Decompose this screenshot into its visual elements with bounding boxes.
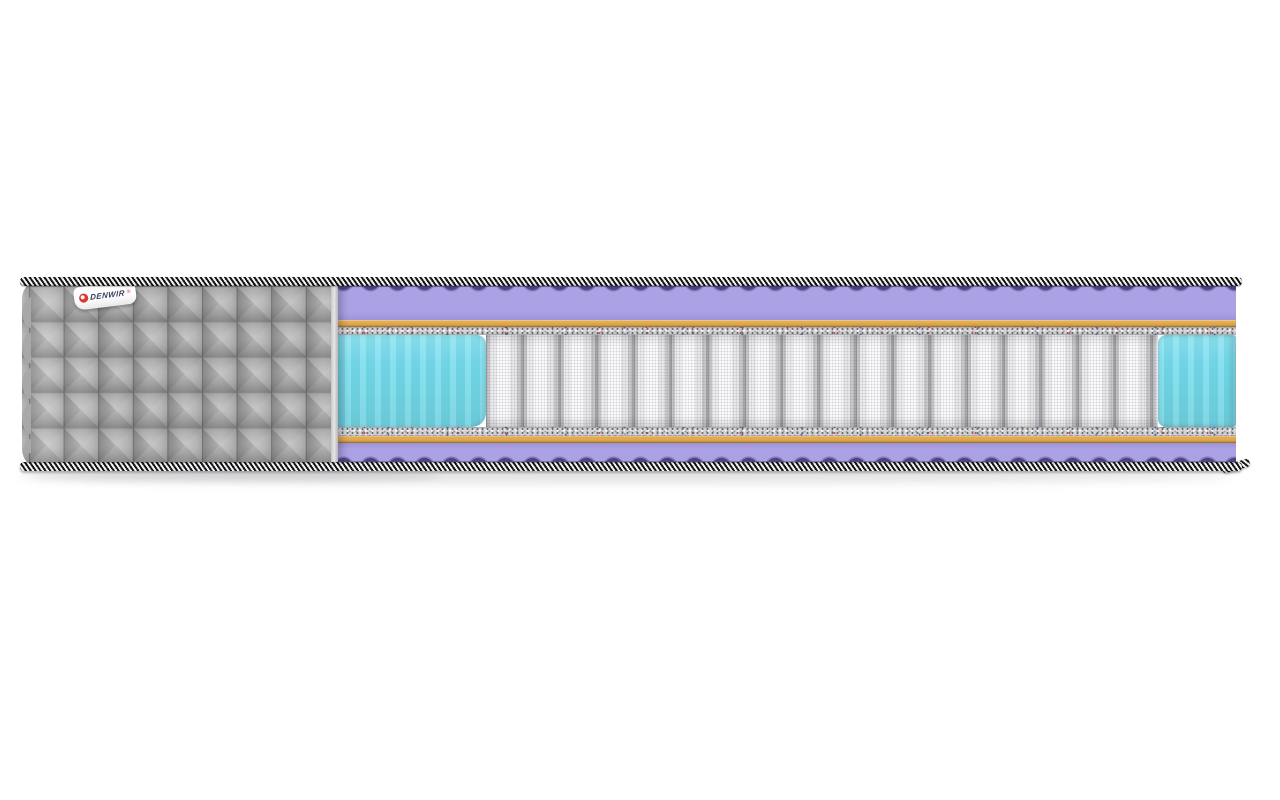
pocket-springs-block — [486, 335, 1158, 427]
brand-logo-icon — [79, 293, 89, 303]
side-foam-right — [1158, 335, 1236, 427]
registered-mark: ® — [127, 290, 131, 295]
product-image: DENWIR ® — [0, 0, 1280, 800]
quilted-cover: DENWIR ® — [22, 279, 334, 469]
cover-cut-edge — [331, 283, 338, 465]
felt-layer-bottom — [330, 427, 1236, 436]
wave-foam-layer-top — [330, 284, 1236, 320]
spring-core — [330, 335, 1236, 427]
side-foam-left — [330, 335, 486, 427]
cover-edge-scallops — [13, 295, 31, 453]
floor-shadow-left — [20, 471, 440, 481]
mattress-cross-section: DENWIR ® — [22, 277, 1238, 471]
brand-name: DENWIR — [90, 289, 125, 301]
support-layer-bottom — [330, 436, 1236, 443]
border-tape-top — [20, 277, 1242, 286]
wave-foam-layer-bottom — [330, 443, 1236, 464]
inner-layers — [330, 279, 1236, 469]
support-layer-top — [330, 320, 1236, 327]
border-tape-bottom — [20, 462, 1242, 471]
felt-layer-top — [330, 327, 1236, 335]
